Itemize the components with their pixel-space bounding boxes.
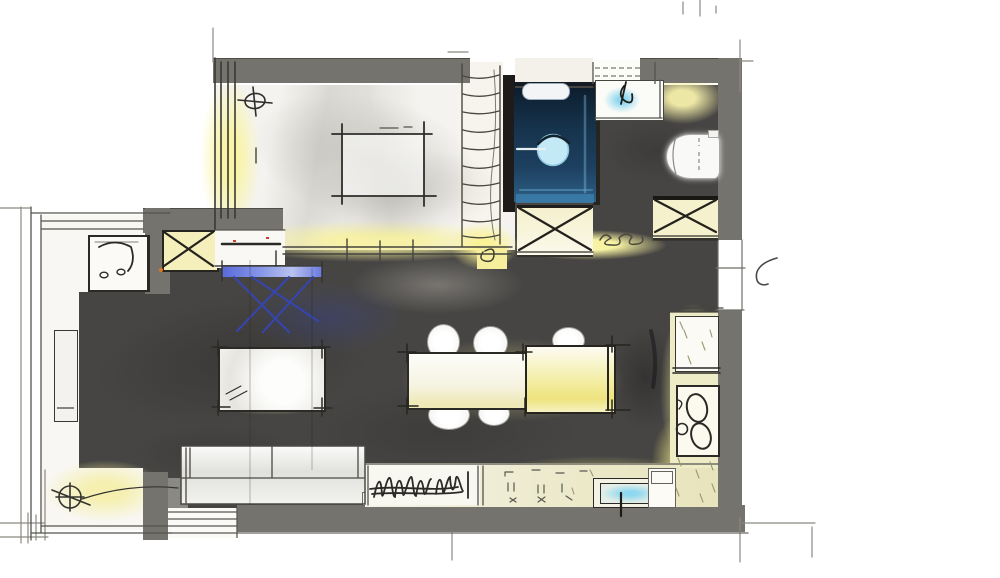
- toilet: [666, 134, 720, 179]
- x-marked-cabinet-bedroom: [162, 230, 219, 272]
- dining-table-right: [525, 345, 616, 414]
- shower-water-band: [516, 194, 594, 203]
- x-marked-cabinet-bath: [653, 196, 718, 240]
- dresser-red-dot-2: [266, 237, 269, 239]
- bottom-wall: [237, 505, 745, 532]
- planter-bench: [54, 330, 78, 422]
- bed: [342, 133, 424, 196]
- yellow-sensor-box: [477, 245, 507, 269]
- right-wall-upper: [718, 58, 742, 240]
- floor-plan-canvas: [0, 0, 1000, 578]
- basin-water-glow: [604, 87, 640, 113]
- counter-small-box-inner: [651, 471, 673, 484]
- blue-bench-bar: [222, 265, 322, 277]
- door-swing-arc: [756, 258, 777, 285]
- cooktop-sink-unit: [676, 385, 720, 457]
- shower-pillow: [522, 83, 570, 100]
- shower-top-strip: [515, 58, 593, 82]
- right-wall-lower: [718, 310, 742, 532]
- wall-stub-bottom-left: [143, 472, 168, 540]
- coffee-table: [218, 347, 326, 412]
- top-wall-left: [213, 58, 470, 83]
- entry-door-frame: [716, 240, 777, 310]
- desk: [88, 235, 150, 292]
- dresser: [215, 230, 285, 268]
- tv-console: [368, 465, 480, 505]
- orange-spark: [159, 268, 163, 272]
- fridge-cabinet: [675, 316, 719, 372]
- dresser-red-dot-1: [233, 240, 236, 242]
- shower-tray: [514, 88, 596, 202]
- toilet-flush-bump: [708, 130, 719, 138]
- tall-shelf-strip: [458, 62, 503, 248]
- balcony-bottom: [42, 468, 143, 530]
- x-marked-cabinet-shower: [517, 205, 593, 257]
- balcony-door-panel: [168, 508, 237, 538]
- dining-table-left: [407, 352, 527, 410]
- sofa: [181, 446, 365, 504]
